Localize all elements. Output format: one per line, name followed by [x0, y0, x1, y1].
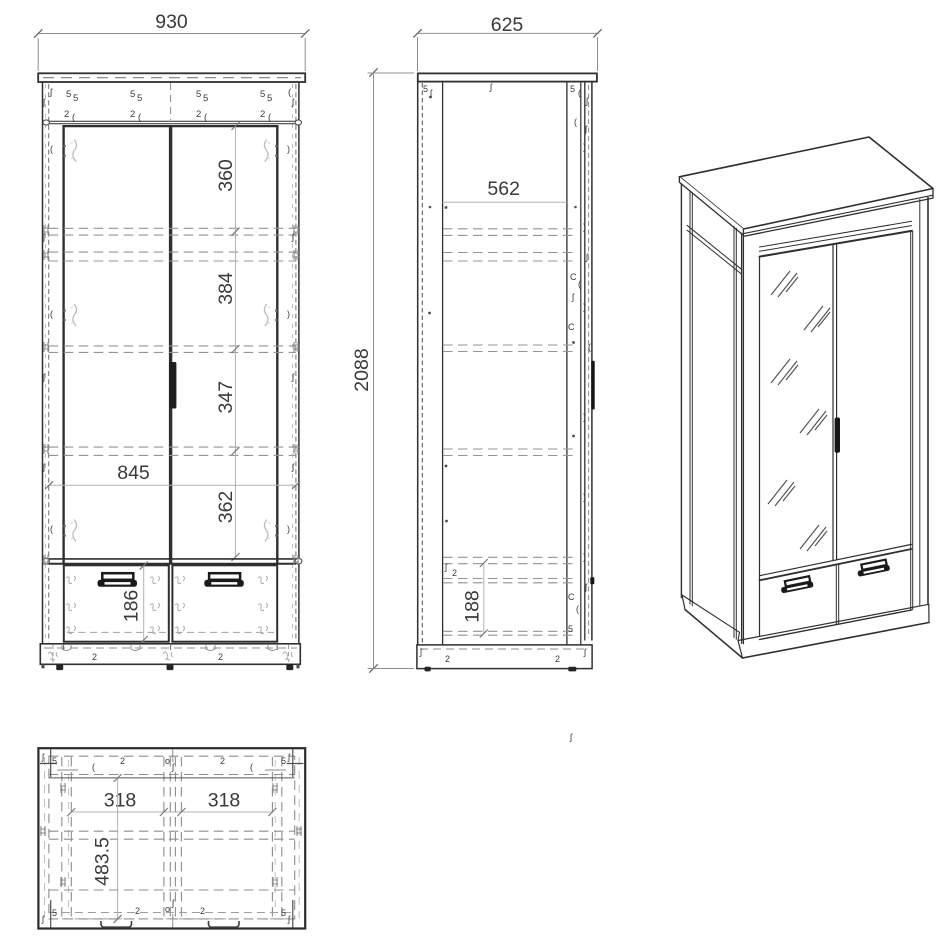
svg-text:5: 5 — [267, 93, 272, 104]
svg-text:(: ( — [250, 762, 253, 772]
svg-text:625: 625 — [491, 14, 524, 36]
svg-text:2: 2 — [196, 109, 201, 120]
svg-text:): ) — [287, 309, 290, 319]
svg-text:): ) — [287, 524, 290, 534]
svg-text:186: 186 — [121, 590, 143, 623]
svg-text:2: 2 — [445, 654, 450, 664]
svg-text:5: 5 — [260, 89, 265, 100]
svg-text:2: 2 — [64, 109, 69, 120]
svg-text:5: 5 — [130, 89, 135, 100]
svg-text:ʃ: ʃ — [569, 732, 573, 742]
svg-text:2: 2 — [220, 756, 225, 766]
svg-text:o: o — [165, 756, 170, 766]
svg-text:ʃ: ʃ — [49, 87, 53, 98]
svg-text:318: 318 — [104, 790, 137, 812]
svg-text:C: C — [568, 322, 575, 332]
svg-text:562: 562 — [487, 178, 520, 200]
svg-text:5: 5 — [52, 756, 57, 766]
svg-text:): ) — [583, 552, 586, 562]
svg-text:(: ( — [576, 604, 579, 614]
svg-text:2: 2 — [200, 906, 205, 916]
svg-text:2: 2 — [555, 654, 560, 664]
svg-text:2: 2 — [130, 109, 135, 120]
svg-text:5: 5 — [203, 93, 208, 104]
svg-text:): ) — [583, 302, 586, 312]
svg-text:5: 5 — [570, 84, 575, 94]
svg-text:C: C — [568, 592, 575, 602]
svg-text:(: ( — [588, 342, 591, 352]
svg-text:5: 5 — [196, 89, 201, 100]
svg-text:5: 5 — [66, 89, 71, 100]
svg-text:5: 5 — [73, 93, 78, 104]
svg-text:ʃ: ʃ — [291, 97, 295, 107]
svg-text:): ) — [583, 412, 586, 422]
svg-text:ʃ: ʃ — [584, 124, 588, 134]
svg-text:ʃ: ʃ — [291, 372, 295, 382]
svg-text:(: ( — [50, 524, 53, 534]
svg-text:): ) — [583, 142, 586, 152]
svg-text:2: 2 — [92, 652, 97, 662]
svg-text:): ) — [583, 222, 586, 232]
svg-text:(: ( — [50, 309, 53, 319]
svg-text:5: 5 — [52, 908, 57, 918]
svg-text:845: 845 — [117, 462, 150, 484]
svg-text:362: 362 — [215, 491, 237, 524]
svg-text:(: ( — [578, 279, 581, 289]
svg-text:): ) — [287, 144, 290, 154]
svg-text:2088: 2088 — [351, 348, 373, 391]
svg-text:930: 930 — [155, 11, 188, 33]
svg-text:384: 384 — [215, 272, 237, 305]
svg-text:347: 347 — [215, 381, 237, 414]
svg-text:C: C — [570, 272, 577, 282]
svg-text:ʃ: ʃ — [571, 292, 575, 302]
svg-text:ʃ: ʃ — [291, 462, 295, 472]
svg-text:5: 5 — [568, 624, 573, 634]
svg-text:318: 318 — [208, 790, 241, 812]
svg-text:ʃ: ʃ — [429, 88, 433, 98]
svg-text:ʃ: ʃ — [489, 82, 493, 92]
svg-text:2: 2 — [135, 906, 140, 916]
svg-text:(: ( — [92, 762, 95, 772]
svg-text:2: 2 — [218, 652, 223, 662]
svg-text:5: 5 — [281, 908, 286, 918]
svg-text:ʃ: ʃ — [584, 582, 588, 592]
svg-text:(: ( — [578, 88, 581, 98]
svg-text:2: 2 — [120, 756, 125, 766]
svg-text:2: 2 — [260, 109, 265, 120]
svg-text:): ) — [583, 492, 586, 502]
svg-text:(: ( — [50, 144, 53, 154]
svg-text:483.5: 483.5 — [92, 837, 114, 886]
svg-text:188: 188 — [462, 590, 484, 623]
svg-text:o: o — [165, 904, 170, 914]
svg-text:(: ( — [574, 117, 577, 127]
svg-text:5: 5 — [137, 93, 142, 104]
svg-text:5: 5 — [423, 84, 428, 94]
svg-text:5: 5 — [281, 756, 286, 766]
svg-text:360: 360 — [215, 159, 237, 192]
svg-text:2: 2 — [452, 568, 457, 578]
